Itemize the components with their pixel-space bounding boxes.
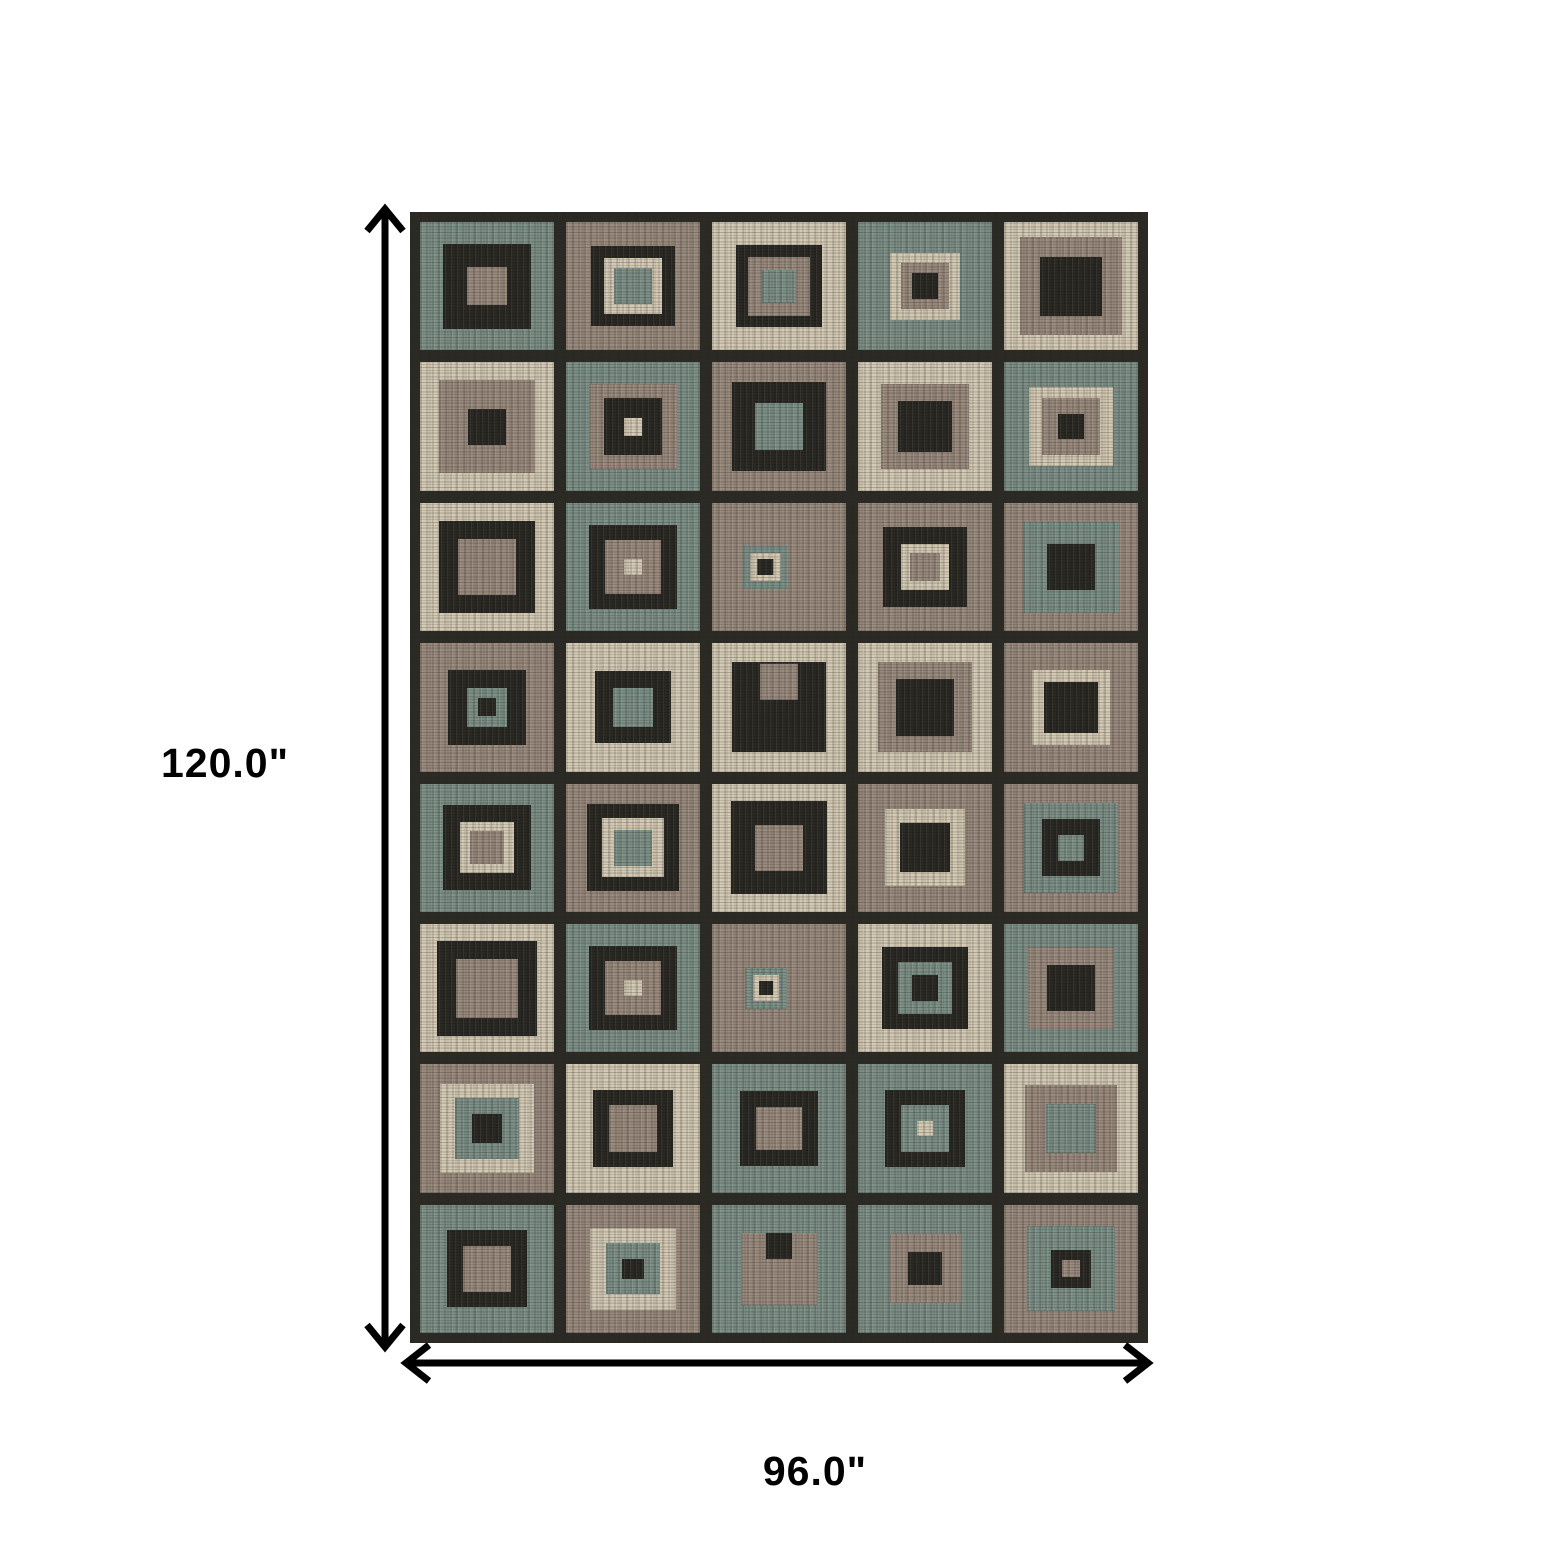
rug-cell-ring [732, 662, 826, 752]
rug-cell-ring [593, 1090, 673, 1167]
rug-cell-ring [467, 688, 507, 727]
rug-cell [420, 784, 554, 912]
rug-cell-ring [448, 670, 526, 744]
rug-cell-ring [467, 267, 507, 306]
rug-cell-ring [589, 384, 677, 469]
rug-cell-ring [889, 1234, 961, 1303]
rug-cell-ring [882, 947, 968, 1029]
rug-cell-ring [757, 559, 773, 574]
rug-cell [712, 222, 846, 350]
rug-cell-ring [743, 545, 789, 589]
rug-cell-ring [443, 805, 531, 890]
rug-cell [858, 924, 992, 1052]
rug-cell-ring [595, 671, 670, 743]
rug-cell-ring [1024, 803, 1118, 893]
rug-cell-ring [624, 418, 643, 436]
rug-cell [420, 362, 554, 490]
rug-cell-ring [731, 801, 827, 893]
rug-cell-ring [898, 962, 952, 1013]
rug-cell-ring [456, 959, 518, 1018]
rug-cell-ring [901, 1105, 949, 1151]
rug-cell-ring [470, 831, 505, 864]
width-dimension-label: 96.0" [695, 1448, 935, 1495]
rug-cell-ring [1058, 414, 1085, 440]
rug-cell [566, 362, 700, 490]
rug-cell-ring [455, 1098, 519, 1160]
rug-cell [858, 643, 992, 771]
rug-cell-ring [591, 246, 674, 326]
rug-cell [1004, 222, 1138, 350]
rug-cell-ring [912, 273, 939, 299]
rug-cell-ring [468, 409, 506, 445]
rug-cell-ring [890, 253, 960, 320]
rug-cell-ring [878, 662, 972, 752]
rug-cell-ring [609, 1105, 657, 1151]
rug-cell-ring [901, 544, 949, 590]
rug-cell-ring [755, 403, 803, 449]
rug-cell [858, 503, 992, 631]
rug-cell-ring [478, 698, 497, 716]
rug-cell [420, 1205, 554, 1333]
rug-cell-ring [885, 1090, 965, 1167]
rug-cell-ring [1020, 237, 1122, 335]
rug-cell-ring [732, 382, 826, 472]
rug-cell-ring [1032, 670, 1110, 744]
rug-cell [566, 1205, 700, 1333]
rug-cell-ring [602, 818, 664, 877]
rug-cell [858, 222, 992, 350]
rug-cell-ring [745, 968, 788, 1009]
rug-cell-ring [605, 961, 661, 1015]
rug-cell-ring [604, 398, 663, 454]
rug-cell [420, 222, 554, 350]
rug-cell-ring [590, 1228, 676, 1310]
rug-cell [1004, 1205, 1138, 1333]
rug-cell-ring [1023, 521, 1119, 613]
rug-cell [1004, 1064, 1138, 1192]
rug-cell-ring [900, 823, 951, 872]
rug-cell-ring [1051, 1250, 1091, 1289]
rug-cell-ring [759, 981, 774, 995]
rug-cell [712, 362, 846, 490]
rug-cell [712, 784, 846, 912]
rug-cell-ring [1047, 544, 1095, 590]
rug-cell-ring [437, 941, 536, 1036]
rug-cell-ring [766, 1233, 793, 1259]
rug-cell-ring [898, 401, 952, 452]
rug-cell-ring [587, 804, 678, 891]
rug-cell-ring [910, 553, 939, 581]
rug-cell-ring [472, 1114, 501, 1142]
rug-cell-ring [460, 822, 514, 873]
rug-cell-ring [1058, 835, 1085, 861]
rug-cell [566, 1064, 700, 1192]
rug-image [410, 212, 1148, 1343]
rug-cell [1004, 643, 1138, 771]
rug-cell [712, 1064, 846, 1192]
rug-cell [566, 503, 700, 631]
rug-cell-ring [606, 1243, 660, 1294]
rug-cell [420, 643, 554, 771]
rug-cell-ring [1044, 682, 1098, 733]
rug-cell-ring [748, 257, 810, 316]
rug-cell [420, 924, 554, 1052]
rug-cell-ring [762, 270, 797, 303]
rug-cell-ring [1062, 1260, 1079, 1277]
rug-cell-ring [741, 1233, 816, 1305]
rug-cell-ring [447, 1230, 527, 1307]
rug-cell-ring [736, 245, 822, 327]
rug-cell [1004, 362, 1138, 490]
rug-cell-ring [605, 540, 661, 594]
rug-cell-ring [624, 559, 641, 576]
rug-cell-ring [1025, 1085, 1116, 1172]
rug-cell-ring [760, 664, 798, 700]
rug-cell [712, 503, 846, 631]
rug-cell-ring [901, 263, 949, 309]
rug-cell-ring [614, 268, 652, 304]
rug-cell-ring [751, 553, 780, 581]
rug-cell-ring [1046, 1104, 1097, 1153]
rug-cell [712, 924, 846, 1052]
rug-cell-ring [1029, 387, 1112, 467]
rug-cell [566, 924, 700, 1052]
rug-cell-ring [908, 1252, 943, 1285]
width-dimension-arrow [395, 1338, 1159, 1388]
rug-cell-ring [1040, 257, 1102, 316]
rug-cell [1004, 924, 1138, 1052]
rug-cell [1004, 503, 1138, 631]
rug-cell-ring [1042, 398, 1101, 454]
height-dimension-arrow [361, 200, 409, 1356]
rug-cell-ring [1028, 947, 1114, 1029]
rug-cell-ring [883, 527, 966, 607]
rug-cell-ring [753, 975, 780, 1001]
rug-cell-ring [614, 830, 652, 866]
rug-cell-ring [912, 975, 939, 1001]
rug-cell-ring [896, 679, 955, 735]
rug-cell-ring [917, 1121, 933, 1136]
product-dimension-figure: 120.0" 96.0" [0, 0, 1560, 1560]
rug-cell [566, 784, 700, 912]
rug-cell [712, 1205, 846, 1333]
rug-cell-ring [589, 946, 677, 1031]
rug-cell-ring [755, 825, 803, 871]
rug-cell-ring [613, 688, 653, 727]
rug-cell-ring [439, 521, 535, 613]
rug-cell-ring [1027, 1226, 1115, 1311]
rug-cell-ring [624, 980, 641, 997]
rug-cell-ring [885, 809, 965, 886]
rug-cell [420, 1064, 554, 1192]
rug-cell [858, 1205, 992, 1333]
rug-cell [420, 503, 554, 631]
height-dimension-label: 120.0" [105, 740, 345, 787]
rug-cell [566, 222, 700, 350]
rug-cell-ring [1042, 819, 1101, 875]
rug-cell-ring [589, 525, 677, 610]
rug-cell-ring [622, 1259, 643, 1280]
rug-cell-ring [740, 1091, 818, 1165]
rug-cell-ring [1047, 965, 1095, 1011]
rug-cell-ring [443, 244, 531, 329]
rug-cell [858, 362, 992, 490]
rug-cell [858, 1064, 992, 1192]
rug-cell-ring [458, 539, 517, 595]
rug-cell-ring [463, 1246, 511, 1292]
rug-cell-ring [604, 258, 663, 314]
rug-cell [858, 784, 992, 912]
rug-cell-ring [439, 380, 535, 472]
rug-cell-ring [440, 1084, 534, 1174]
rug-cell-ring [756, 1107, 802, 1151]
rug-cell [712, 643, 846, 771]
rug-cell [566, 643, 700, 771]
rug-cell-ring [881, 384, 969, 469]
rug-cell [1004, 784, 1138, 912]
